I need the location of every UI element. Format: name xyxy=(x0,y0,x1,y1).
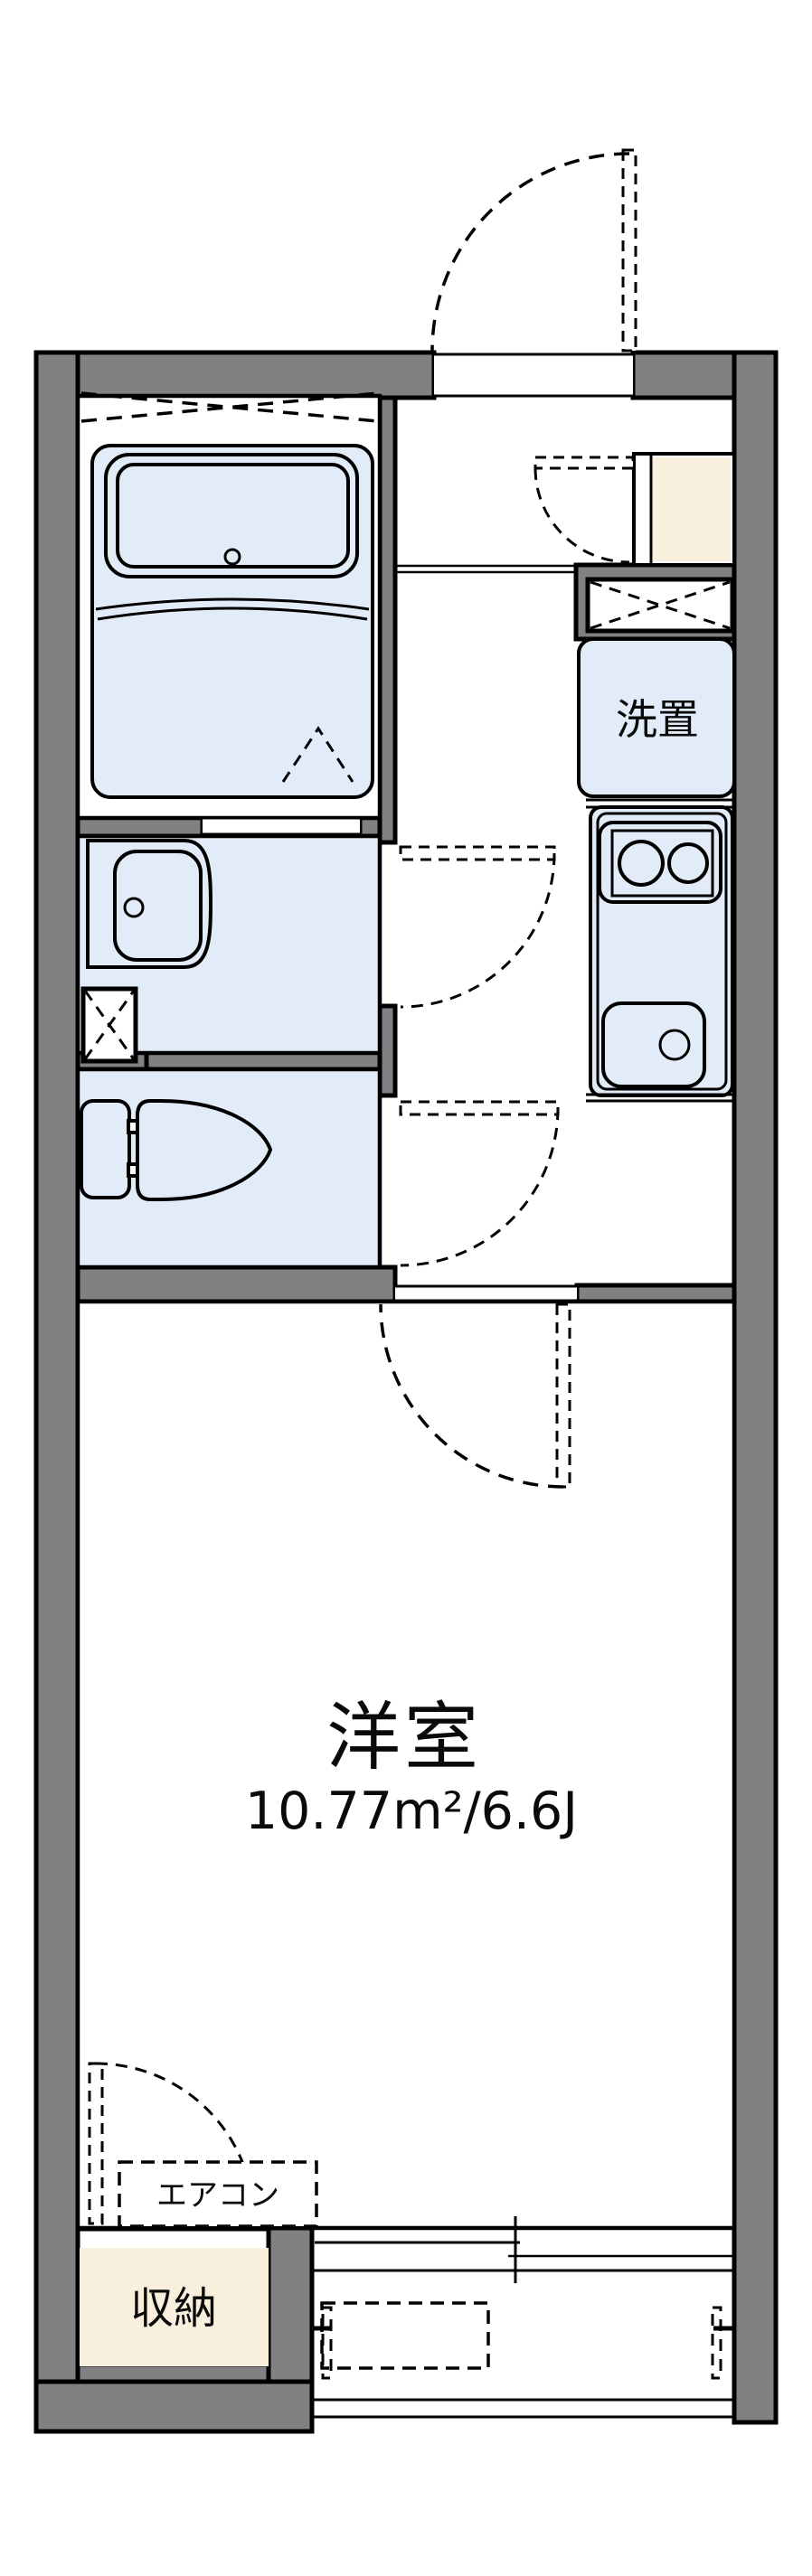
main-room-door-leaf xyxy=(557,1304,570,1487)
balcony-rail-lines xyxy=(312,2400,734,2417)
balcony-hatch-box xyxy=(322,2303,488,2368)
hall-door-leaf xyxy=(535,457,633,468)
washroom-door-leaf xyxy=(401,847,554,860)
wall-bottom-left xyxy=(36,2382,312,2431)
toilet-tank xyxy=(81,1101,129,1198)
bathtub-outer xyxy=(92,446,373,797)
storage-label: 収納 xyxy=(130,2283,217,2334)
main-room-area-label: 10.77m²/6.6J xyxy=(245,1782,578,1841)
balcony xyxy=(312,2216,734,2417)
wall-left xyxy=(36,353,78,2431)
entry-step-lines xyxy=(395,566,576,572)
wall-divider-mid xyxy=(380,1006,395,1095)
shoe-cabinet-fill xyxy=(653,457,731,561)
wall-corridor-bottom xyxy=(577,1285,734,1302)
washroom-door-swing-arc xyxy=(401,853,554,1007)
toilet-door-leaf xyxy=(401,1102,558,1114)
entry-door-leaf xyxy=(623,150,636,351)
washer-place-label: 洗置 xyxy=(616,695,699,744)
aircon-label: エアコン xyxy=(156,2177,279,2214)
entry-opening xyxy=(434,355,633,395)
wall-toilet-bottom xyxy=(78,1267,395,1302)
washer-place: 洗置 xyxy=(579,639,734,796)
floorplan-page: 洗置 洋室 10.77m²/6.6J エアコン xyxy=(0,0,812,2576)
wall-divider-upper xyxy=(380,398,395,842)
main-room-opening xyxy=(395,1287,577,1300)
wall-right xyxy=(734,353,776,2422)
floorplan-svg: 洗置 洋室 10.77m²/6.6J エアコン xyxy=(0,0,812,2576)
entry-door-swing-arc xyxy=(432,154,629,351)
closet-door-leaf xyxy=(90,2064,102,2223)
hall-door-swing-arc xyxy=(535,468,629,562)
bath-door-opening xyxy=(203,819,360,833)
kitchen-bottom-lines xyxy=(586,1095,734,1101)
toilet-door-swing-arc xyxy=(401,1108,558,1265)
main-room-label: 洋室 xyxy=(326,1695,482,1781)
bath-room xyxy=(81,393,378,797)
laundry-pole-right-icon xyxy=(713,2308,721,2378)
kitchen xyxy=(586,800,734,1101)
wall-top-left xyxy=(36,353,434,398)
